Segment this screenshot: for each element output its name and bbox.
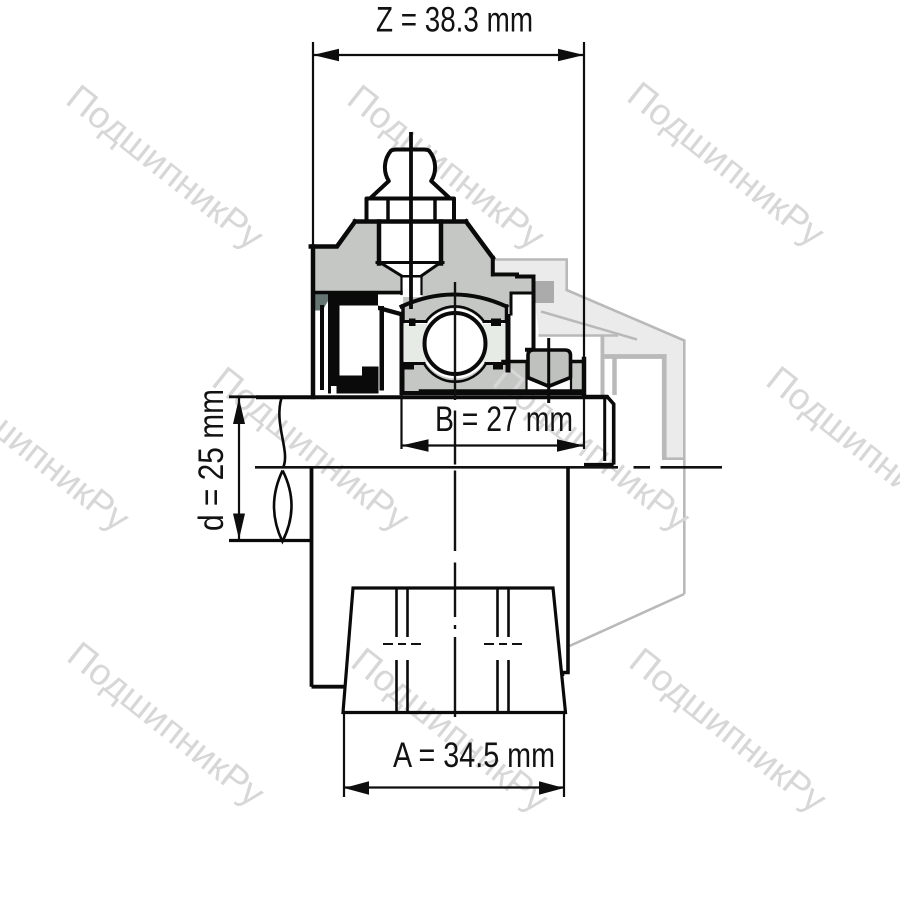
svg-text:B = 27 mm: B = 27 mm bbox=[435, 400, 573, 439]
svg-text:Z = 38.3 mm: Z = 38.3 mm bbox=[376, 1, 533, 40]
svg-text:A = 34.5 mm: A = 34.5 mm bbox=[393, 736, 555, 775]
svg-text:d = 25 mm: d = 25 mm bbox=[192, 389, 231, 531]
